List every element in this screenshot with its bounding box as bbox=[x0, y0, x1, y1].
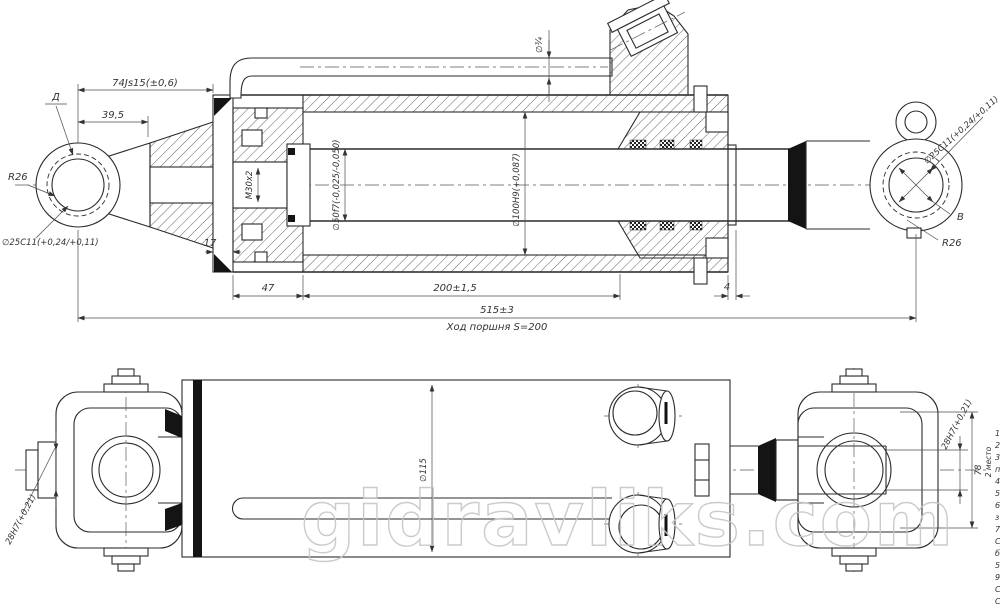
edge-number: 5 bbox=[995, 489, 1000, 498]
drawing-canvas: M30x2 bbox=[0, 0, 1000, 604]
edge-number: б bbox=[995, 549, 1000, 558]
rod-dia-label: ∅50f7(-0,025/-0,050) bbox=[332, 140, 342, 231]
dim-47-label: 47 bbox=[262, 283, 275, 294]
left-clevis bbox=[26, 369, 182, 571]
thread-label: M30x2 bbox=[245, 171, 255, 200]
edge-number: 1 bbox=[995, 429, 1000, 438]
right-eye bbox=[870, 102, 962, 238]
weld-band bbox=[788, 141, 806, 229]
edge-number: 6 bbox=[995, 501, 1000, 510]
edge-number: С bbox=[995, 597, 1000, 604]
cap-and-piston: M30x2 bbox=[213, 95, 310, 272]
port-block bbox=[599, 0, 692, 95]
tube-dia-label: ∅¾ bbox=[535, 36, 545, 52]
flag-d-label: Д bbox=[51, 92, 60, 103]
edge-numbers-column: 123п456з7Сб59СС bbox=[995, 429, 1000, 604]
dim-78-label: 78 bbox=[974, 464, 984, 475]
pin-right-label: 28H7(+0,21) bbox=[940, 398, 975, 452]
dim-4-label: 4 bbox=[724, 282, 730, 293]
edge-number: п bbox=[995, 465, 1000, 474]
edge-number: 4 bbox=[995, 477, 1000, 486]
dim-39-5-label: 39,5 bbox=[102, 110, 124, 121]
top-view: M30x2 bbox=[2, 0, 1000, 333]
watermark: gidravliks.com bbox=[301, 474, 955, 563]
bore-dia-label: ∅100H9(+0,087) bbox=[512, 153, 522, 227]
hole-left-label: ∅25C11(+0,24/+0,11) bbox=[2, 238, 99, 248]
edge-number: 9 bbox=[995, 573, 1000, 582]
edge-number: 2 bbox=[995, 441, 1000, 450]
left-eye bbox=[36, 122, 213, 248]
edge-number: 7 bbox=[995, 525, 1000, 534]
edge-number: С bbox=[995, 537, 1000, 546]
r26-right-label: R26 bbox=[942, 238, 962, 249]
edge-number: з bbox=[995, 513, 999, 522]
r26-left-label: R26 bbox=[8, 172, 28, 183]
flag-b-label: В bbox=[957, 212, 964, 223]
places-note-label: 2 место bbox=[984, 446, 993, 477]
pin-left-label: 28H7(+0,21) bbox=[4, 493, 39, 547]
feed-tube bbox=[230, 58, 612, 98]
dim-74-label: 74Js15(±0,6) bbox=[112, 78, 178, 89]
dim-200-label: 200±1,5 bbox=[433, 283, 476, 294]
stroke-note-label: Ход поршня S=200 bbox=[446, 322, 548, 333]
dim-17-label: 17 bbox=[204, 238, 217, 249]
dim-515-label: 515±3 bbox=[480, 305, 514, 316]
edge-number: 5 bbox=[995, 561, 1000, 570]
hydraulic-cylinder-drawing: M30x2 bbox=[0, 0, 1000, 604]
edge-number: С bbox=[995, 585, 1000, 594]
edge-number: 3 bbox=[995, 453, 1000, 462]
